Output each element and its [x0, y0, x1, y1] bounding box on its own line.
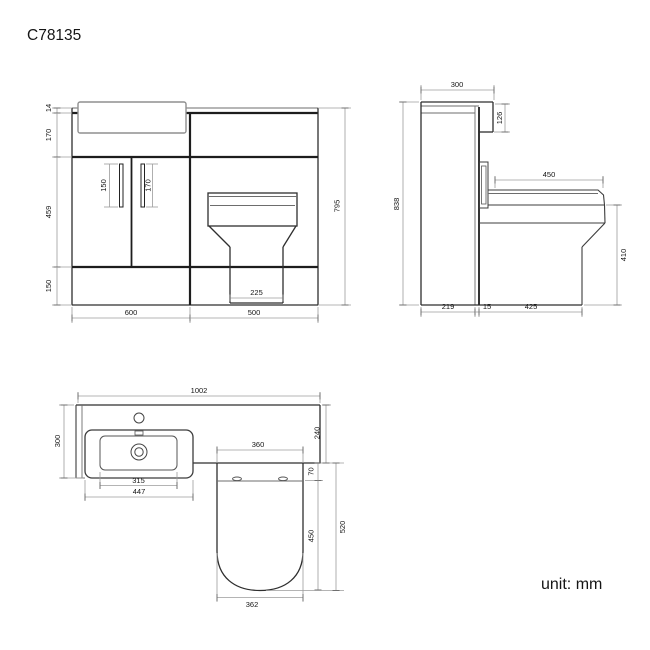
dim-vanity-width: 600	[125, 308, 138, 317]
cistern-seat-outline	[208, 193, 297, 226]
technical-drawing-page: C78135	[0, 0, 650, 650]
plan-basin	[85, 413, 193, 478]
dim-right-handle: 170	[144, 179, 153, 192]
dim-basin-width: 447	[133, 487, 146, 496]
dim-overall-height: 795	[333, 200, 342, 213]
dim-cabinet-depth: 219	[442, 302, 455, 311]
dim-seat-depth: 450	[543, 170, 556, 179]
dim-worktop-drop: 126	[495, 112, 504, 125]
dim-pan-front-width: 362	[246, 600, 259, 609]
plan-view: 1002 300 240 70 450 520 360 315	[53, 386, 347, 609]
unit-label: unit: mm	[541, 576, 602, 593]
front-toilet	[208, 193, 297, 303]
dim-pan-total-depth: 520	[338, 521, 347, 534]
basin-front-outline	[78, 102, 186, 133]
front-dimensions: 14 170 459 150 150 170 795 225 600 50	[44, 104, 351, 323]
dim-pan-width: 360	[252, 440, 265, 449]
bowl-front-edge	[605, 205, 606, 223]
dim-overall-height: 838	[392, 198, 401, 211]
tap-hole	[134, 413, 144, 423]
dim-depth: 300	[451, 80, 464, 89]
side-toilet	[479, 190, 605, 305]
dim-worktop-depth: 240	[313, 427, 322, 440]
left-door-handle	[120, 164, 124, 207]
dim-door-height: 459	[44, 206, 53, 219]
dim-worktop-to-doors: 170	[44, 129, 53, 142]
front-view: 14 170 459 150 150 170 795 225 600 50	[44, 102, 351, 323]
dim-worktop-thickness: 14	[44, 104, 53, 112]
dim-plinth-height: 150	[44, 280, 53, 293]
bowl-taper-right	[283, 226, 296, 247]
dim-basin-bowl-width: 315	[132, 476, 145, 485]
dim-pan-length: 450	[307, 530, 316, 543]
dim-pan-projection: 425	[525, 302, 538, 311]
seat-top-profile	[488, 190, 605, 205]
seat-bracket-outer	[480, 162, 489, 208]
dim-wc-unit-width: 500	[248, 308, 261, 317]
drawing-svg: C78135	[0, 0, 650, 650]
dim-seat-inset: 70	[307, 467, 316, 475]
side-view: 300 126 838 450 410 219 15	[392, 80, 628, 317]
dim-seat-height: 410	[619, 249, 628, 262]
plan-toilet	[217, 463, 303, 591]
hinge-left	[233, 477, 242, 481]
dim-pedestal-width: 225	[250, 288, 263, 297]
bowl-taper-left	[209, 226, 230, 247]
side-dimensions: 300 126 838 450 410 219 15	[392, 80, 628, 317]
hinge-right	[279, 477, 288, 481]
pedestal-taper-line	[582, 223, 605, 247]
side-cabinet	[421, 102, 582, 305]
dim-basin-depth: 300	[53, 435, 62, 448]
pan-front-curve	[217, 551, 303, 591]
dim-gap: 15	[483, 302, 491, 311]
dim-overall-width: 1002	[191, 386, 208, 395]
drawing-title: C78135	[27, 27, 81, 44]
dim-left-handle: 150	[99, 179, 108, 192]
